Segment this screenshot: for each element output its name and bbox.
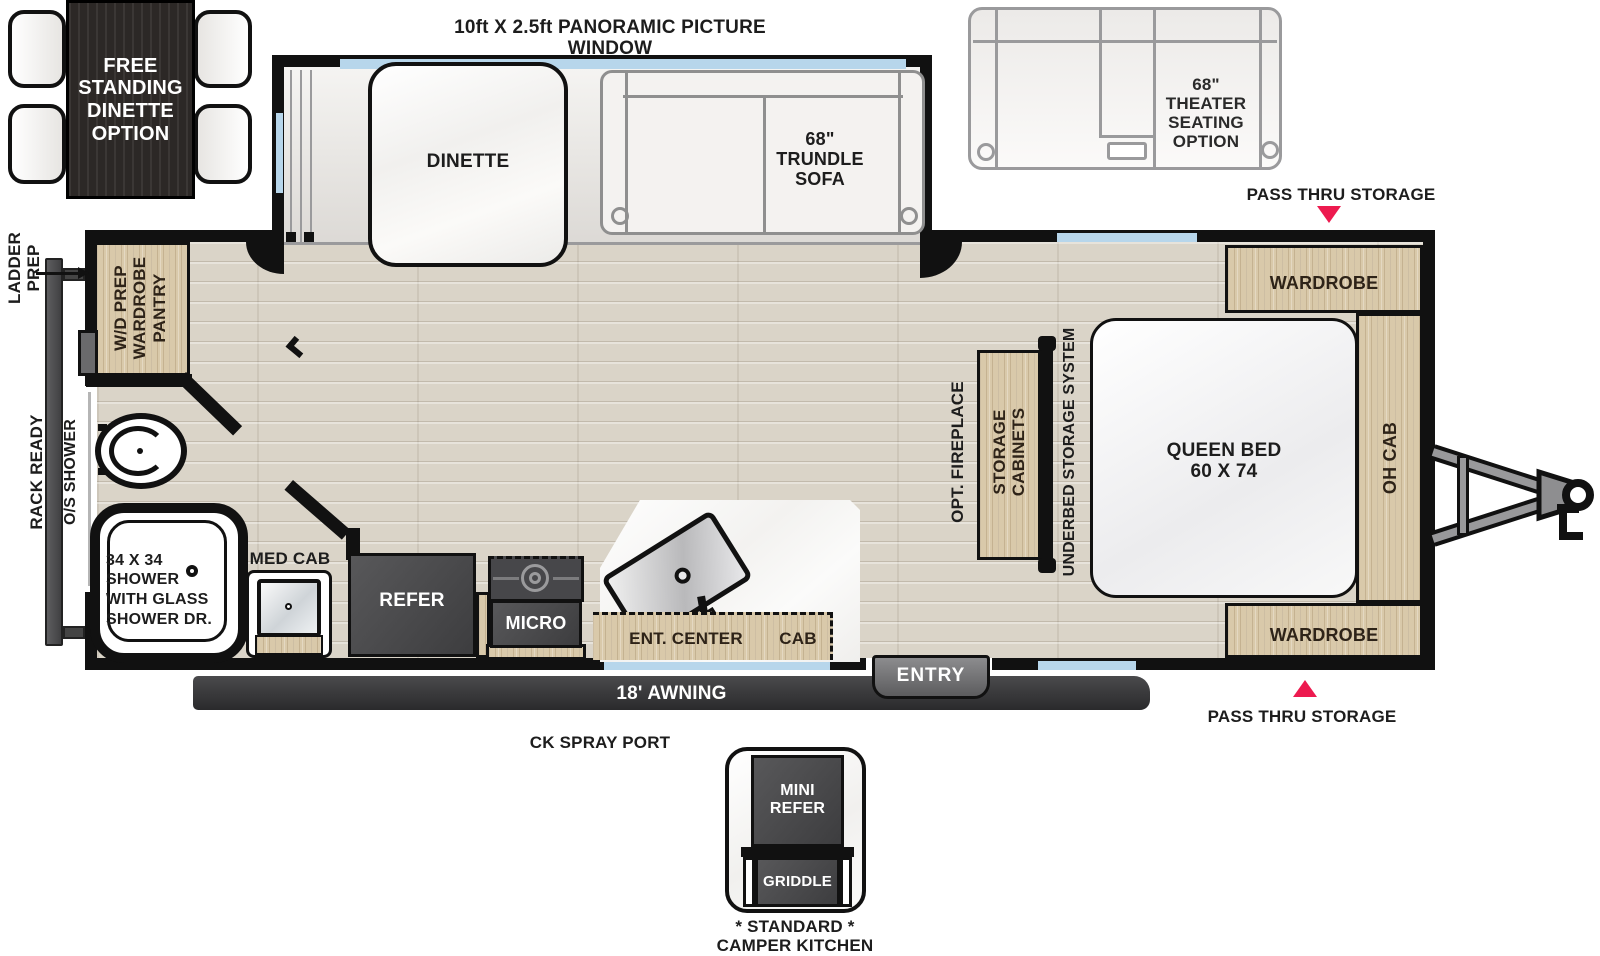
wd-prep-pantry-label: W/D PREP WARDROBE PANTRY	[110, 247, 170, 369]
grate-line	[553, 577, 579, 580]
slide-rail	[290, 70, 292, 242]
queen-bed-label: QUEEN BED 60 X 74	[1090, 438, 1358, 484]
mini-refer-label: MINI REFER	[751, 777, 844, 823]
griddle-rail	[840, 857, 852, 907]
awning-label: 18' AWNING	[193, 684, 1150, 704]
opt-fireplace-label: OPT. FIREPLACE	[948, 368, 968, 536]
camper-kitchen-label: * STANDARD * CAMPER KITCHEN	[710, 917, 880, 955]
theater-seating-label: 68" THEATER SEATING OPTION	[1141, 68, 1271, 158]
vanity-drain-dot	[285, 603, 292, 610]
rack-ready-label: RACK READY	[27, 387, 47, 557]
dinette-chair	[8, 104, 66, 184]
slide-side-window	[276, 113, 283, 193]
console-line	[1099, 10, 1102, 135]
dinette-chair	[194, 104, 252, 184]
pass-thru-storage-top-label: PASS THRU STORAGE	[1245, 185, 1437, 205]
pass-thru-arrow-icon	[1317, 206, 1341, 223]
panoramic-window-label: 10ft X 2.5ft PANORAMIC PICTURE WINDOW	[415, 26, 805, 50]
wardrobe-bottom-label: WARDROBE	[1225, 624, 1423, 646]
kitchen-window	[604, 661, 830, 670]
toilet-hinge	[98, 424, 107, 431]
sofa-leg-circle	[977, 143, 995, 161]
slide-stop	[286, 232, 296, 242]
wardrobe-top-label: WARDROBE	[1225, 272, 1423, 294]
sofa-back-line	[973, 40, 1277, 43]
pass-thru-storage-bottom-label: PASS THRU STORAGE	[1206, 707, 1398, 727]
toilet	[95, 413, 187, 489]
oh-cab-label: OH CAB	[1379, 403, 1401, 513]
slide-stop	[304, 232, 314, 242]
refer-label: REFER	[348, 590, 476, 612]
storage-cabinet-cap	[1038, 336, 1056, 351]
ck-spray-port-label: CK SPRAY PORT	[520, 733, 680, 753]
theater-seating-option: 68" THEATER SEATING OPTION	[968, 7, 1282, 170]
trundle-sofa-label: 68" TRUNDLE SOFA	[750, 126, 890, 192]
sink-drain	[672, 565, 694, 587]
cab-label: CAB	[773, 629, 823, 649]
shower-label: 34 X 34 SHOWER WITH GLASS SHOWER DR.	[106, 548, 228, 632]
entry-label: ENTRY	[872, 665, 990, 687]
slide-rail	[310, 70, 312, 242]
free-standing-dinette-option: FREE STANDING DINETTE OPTION	[0, 0, 270, 210]
ladder-prep-arrowhead-icon	[78, 267, 89, 279]
pass-thru-arrow-icon	[1293, 680, 1317, 697]
storage-cabinet-cap	[1038, 558, 1056, 573]
sofa-arm-line	[898, 73, 901, 232]
sofa-leg-circle	[900, 207, 918, 225]
vanity	[246, 570, 332, 658]
grate-line	[493, 577, 519, 580]
toilet-drain-dot	[137, 448, 143, 454]
hitch-graphic	[1423, 408, 1600, 583]
dinette-label: DINETTE	[368, 150, 568, 174]
griddle-rail	[743, 857, 755, 907]
micro-label: MICRO	[490, 612, 582, 634]
sofa-leg-circle	[611, 207, 629, 225]
camper-kitchen: MINI REFER GRIDDLE	[725, 747, 866, 913]
ent-center-cabinet: ENT. CENTER CAB	[593, 612, 833, 660]
griddle-label: GRIDDLE	[755, 872, 840, 892]
cooktop	[488, 556, 584, 602]
griddle-frame	[741, 847, 854, 857]
sofa-arm-line	[995, 10, 998, 167]
ladder-prep-label: LADDER PREP	[4, 223, 44, 313]
os-shower-label: O/S SHOWER	[61, 387, 81, 557]
med-cab-label: MED CAB	[244, 549, 336, 569]
storage-cabinets-label: STORAGE CABINETS	[989, 357, 1029, 547]
wall-control	[78, 330, 98, 376]
storage-cabinet-trim	[1041, 340, 1053, 572]
dinette-chair	[8, 10, 66, 88]
slide-rail	[300, 70, 302, 242]
toilet-hinge	[98, 468, 107, 475]
free-dinette-label: FREE STANDING DINETTE OPTION	[66, 50, 195, 150]
rack-mount	[63, 626, 85, 639]
bedroom-bottom-window	[1038, 661, 1136, 670]
underbed-storage-label: UNDERBED STORAGE SYSTEM	[1060, 318, 1080, 586]
floorplan-canvas: FREE STANDING DINETTE OPTION 10ft X 2.5f…	[0, 0, 1600, 956]
vanity-base	[255, 635, 323, 655]
bedroom-top-window	[1057, 233, 1197, 242]
dinette-chair	[194, 10, 252, 88]
ent-center-label: ENT. CENTER	[621, 629, 751, 649]
burner-ring-inner	[529, 572, 541, 584]
